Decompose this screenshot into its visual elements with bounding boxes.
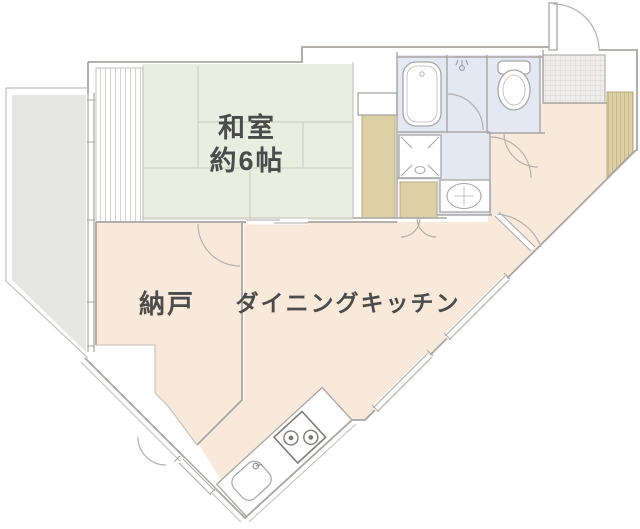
label-washitsu-line2: 約6帖 <box>209 145 284 176</box>
floorplan-svg: 和室 約6帖 納戸 ダイニングキッチン <box>0 0 640 529</box>
sliding-door <box>246 219 308 225</box>
washing-machine-pan-icon <box>399 135 441 178</box>
balcony <box>12 95 86 352</box>
label-dining-kitchen: ダイニングキッチン <box>236 290 461 316</box>
engawa-strip <box>96 68 143 222</box>
genkan-tile <box>543 55 605 103</box>
balcony-window <box>87 93 95 352</box>
room-nando <box>96 222 242 445</box>
label-washitsu-line1: 和室 <box>218 112 276 143</box>
closet-small <box>400 182 437 218</box>
washbasin-icon <box>440 180 490 212</box>
room-washroom <box>447 55 487 132</box>
entrance-door-icon <box>549 3 599 50</box>
label-nando: 納戸 <box>139 289 195 319</box>
door-swing-exterior <box>138 437 166 465</box>
toilet-icon <box>498 61 530 110</box>
closet-oshiire <box>362 115 395 218</box>
closet-shelf <box>358 93 397 115</box>
floorplan-canvas: 和室 約6帖 納戸 ダイニングキッチン <box>0 0 640 529</box>
bathtub-icon <box>403 62 441 126</box>
